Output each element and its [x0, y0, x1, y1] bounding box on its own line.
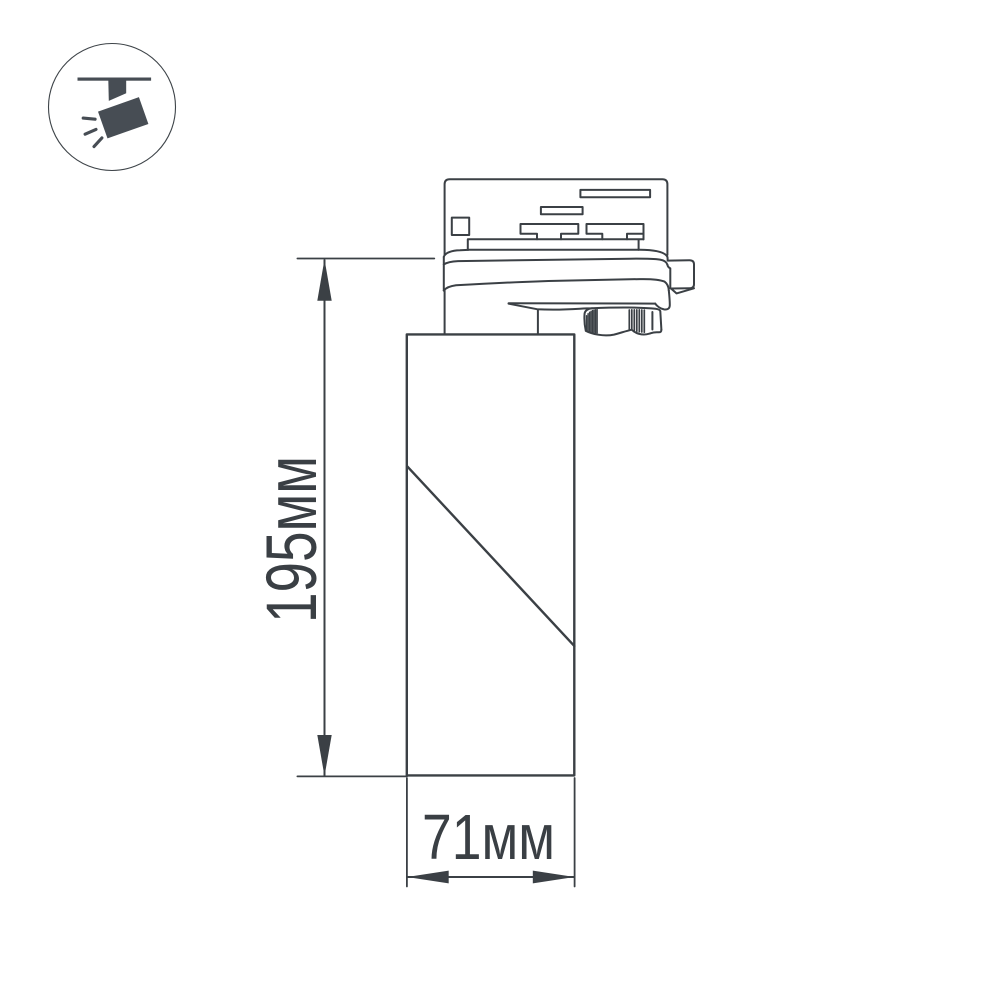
svg-text:195мм: 195мм — [253, 456, 332, 623]
svg-text:71мм: 71мм — [422, 801, 555, 873]
